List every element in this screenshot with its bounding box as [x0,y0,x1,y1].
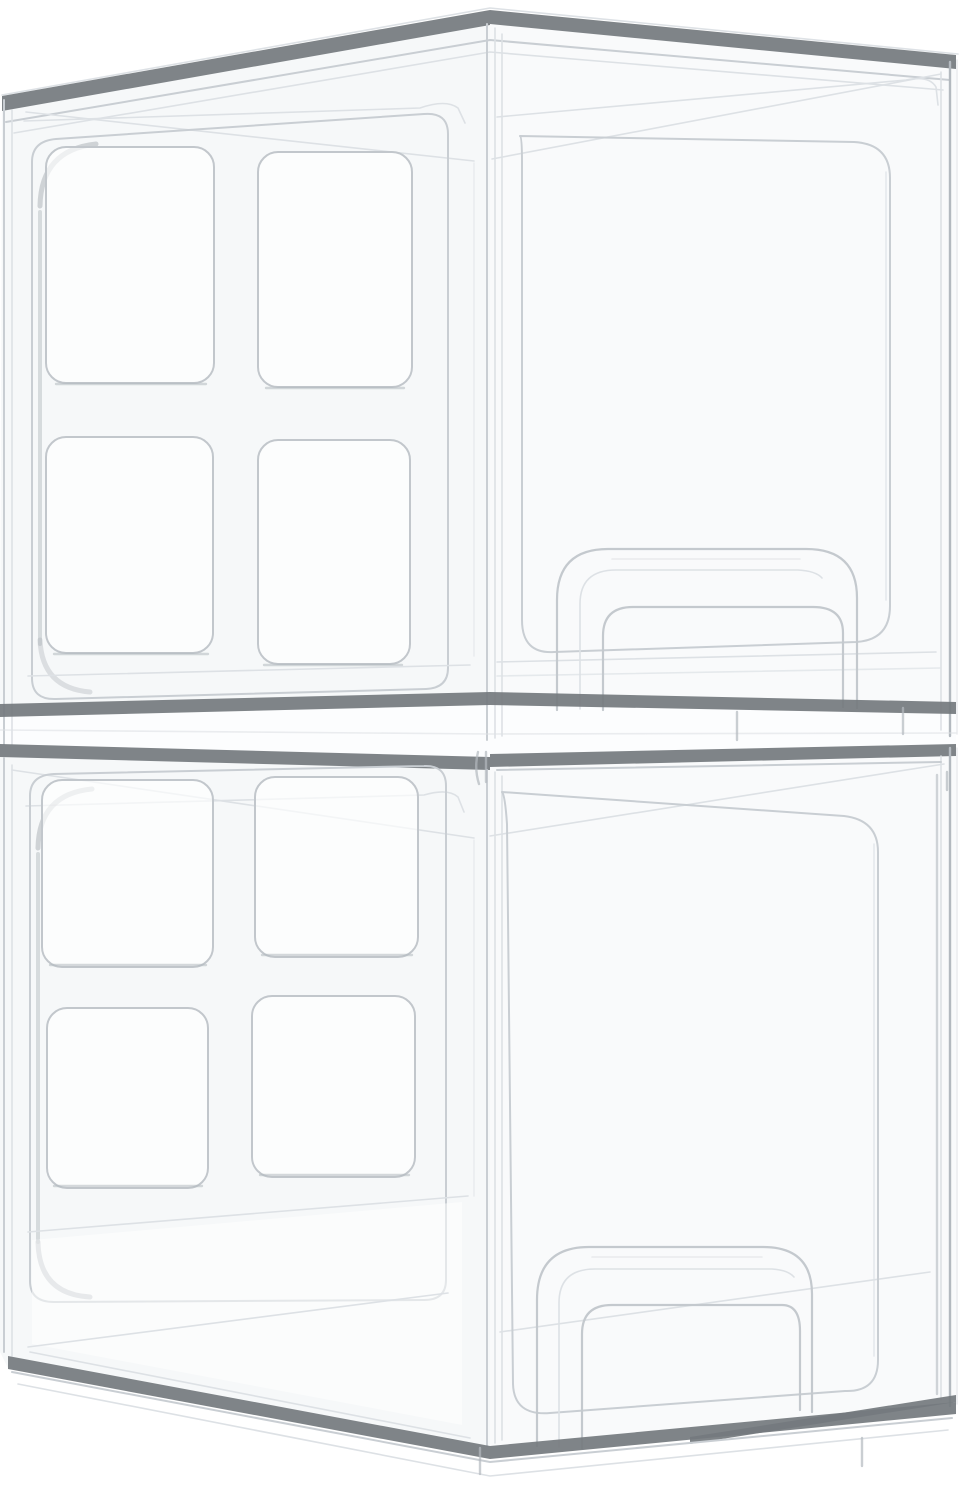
bottom-drawer-unit [0,744,957,1476]
cutout-square-bottom-right [252,996,415,1177]
cutout-square-bottom-left [46,437,213,653]
cutout-square-top-right [258,152,412,387]
cutout-square-top-right [255,777,418,957]
cutout-square-top-left [46,147,214,383]
cutout-square-top-left [42,780,213,967]
stacked-drawers-illustration [0,0,966,1500]
top-drawer-unit [0,8,958,770]
cutout-square-bottom-left [47,1008,208,1188]
cutout-square-bottom-right [258,440,410,664]
product-photo: Two clear stackable acrylic storage draw… [0,0,966,1500]
bottom-unit-front-face [490,746,956,1458]
